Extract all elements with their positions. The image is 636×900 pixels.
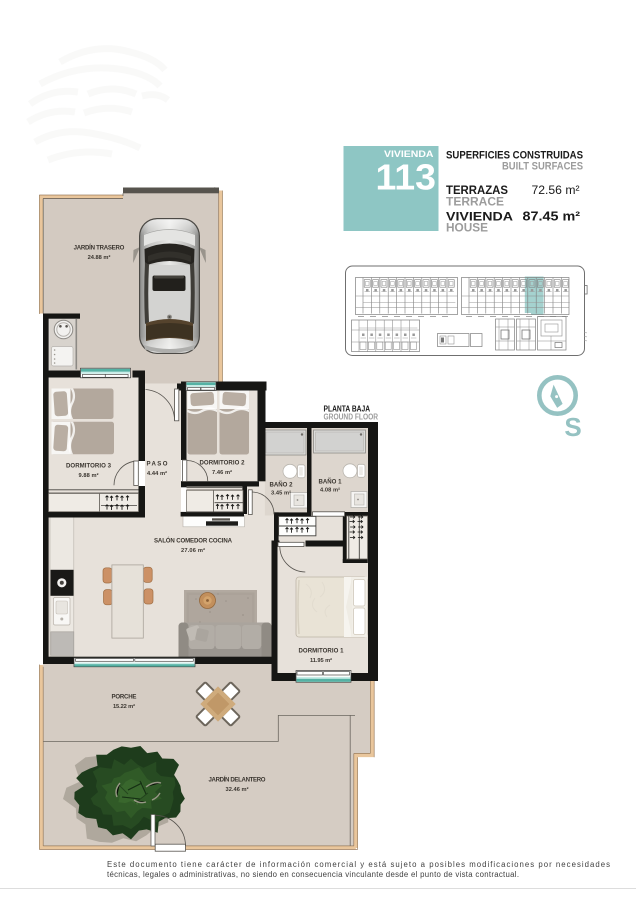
svg-text:87.45 m²: 87.45 m² xyxy=(523,210,581,224)
svg-text:32.46 m²: 32.46 m² xyxy=(226,786,249,793)
svg-text:4.44 m²: 4.44 m² xyxy=(147,470,167,477)
svg-text:113: 113 xyxy=(376,157,437,198)
svg-text:27.06 m²: 27.06 m² xyxy=(181,547,205,554)
svg-text:JARDÍN DELANTERO: JARDÍN DELANTERO xyxy=(209,776,266,784)
svg-text:S: S xyxy=(564,412,581,442)
svg-text:15.22 m²: 15.22 m² xyxy=(113,703,135,710)
svg-text:11.95 m²: 11.95 m² xyxy=(310,657,332,664)
svg-text:DORMITORIO 1: DORMITORIO 1 xyxy=(299,648,345,655)
svg-text:técnicas, legales o administra: técnicas, legales o administrativas, no … xyxy=(107,870,519,879)
svg-text:GROUND FLOOR: GROUND FLOOR xyxy=(324,413,379,422)
svg-text:Este documento tiene carácter: Este documento tiene carácter de informa… xyxy=(107,860,610,869)
svg-text:TERRACE: TERRACE xyxy=(446,195,504,209)
svg-text:DORMITORIO 3: DORMITORIO 3 xyxy=(66,463,112,470)
svg-text:9.88 m²: 9.88 m² xyxy=(79,472,99,479)
svg-text:BAÑO 1: BAÑO 1 xyxy=(319,479,343,486)
svg-text:BUILT SURFACES: BUILT SURFACES xyxy=(502,161,583,173)
svg-text:JARDÍN TRASERO: JARDÍN TRASERO xyxy=(74,244,125,252)
svg-text:4.08 m²: 4.08 m² xyxy=(320,487,340,494)
svg-text:24.88 m²: 24.88 m² xyxy=(88,254,111,261)
svg-text:PORCHE: PORCHE xyxy=(112,694,137,701)
svg-text:72.56 m²: 72.56 m² xyxy=(532,183,580,197)
svg-text:PASO: PASO xyxy=(147,461,168,468)
svg-text:DORMITORIO 2: DORMITORIO 2 xyxy=(200,460,246,467)
svg-text:7.46 m²: 7.46 m² xyxy=(212,469,232,476)
svg-text:BAÑO 2: BAÑO 2 xyxy=(270,482,294,489)
svg-text:3.45 m²: 3.45 m² xyxy=(271,490,291,497)
svg-text:HOUSE: HOUSE xyxy=(446,221,488,235)
svg-text:SALÓN COMEDOR COCINA: SALÓN COMEDOR COCINA xyxy=(154,537,233,545)
